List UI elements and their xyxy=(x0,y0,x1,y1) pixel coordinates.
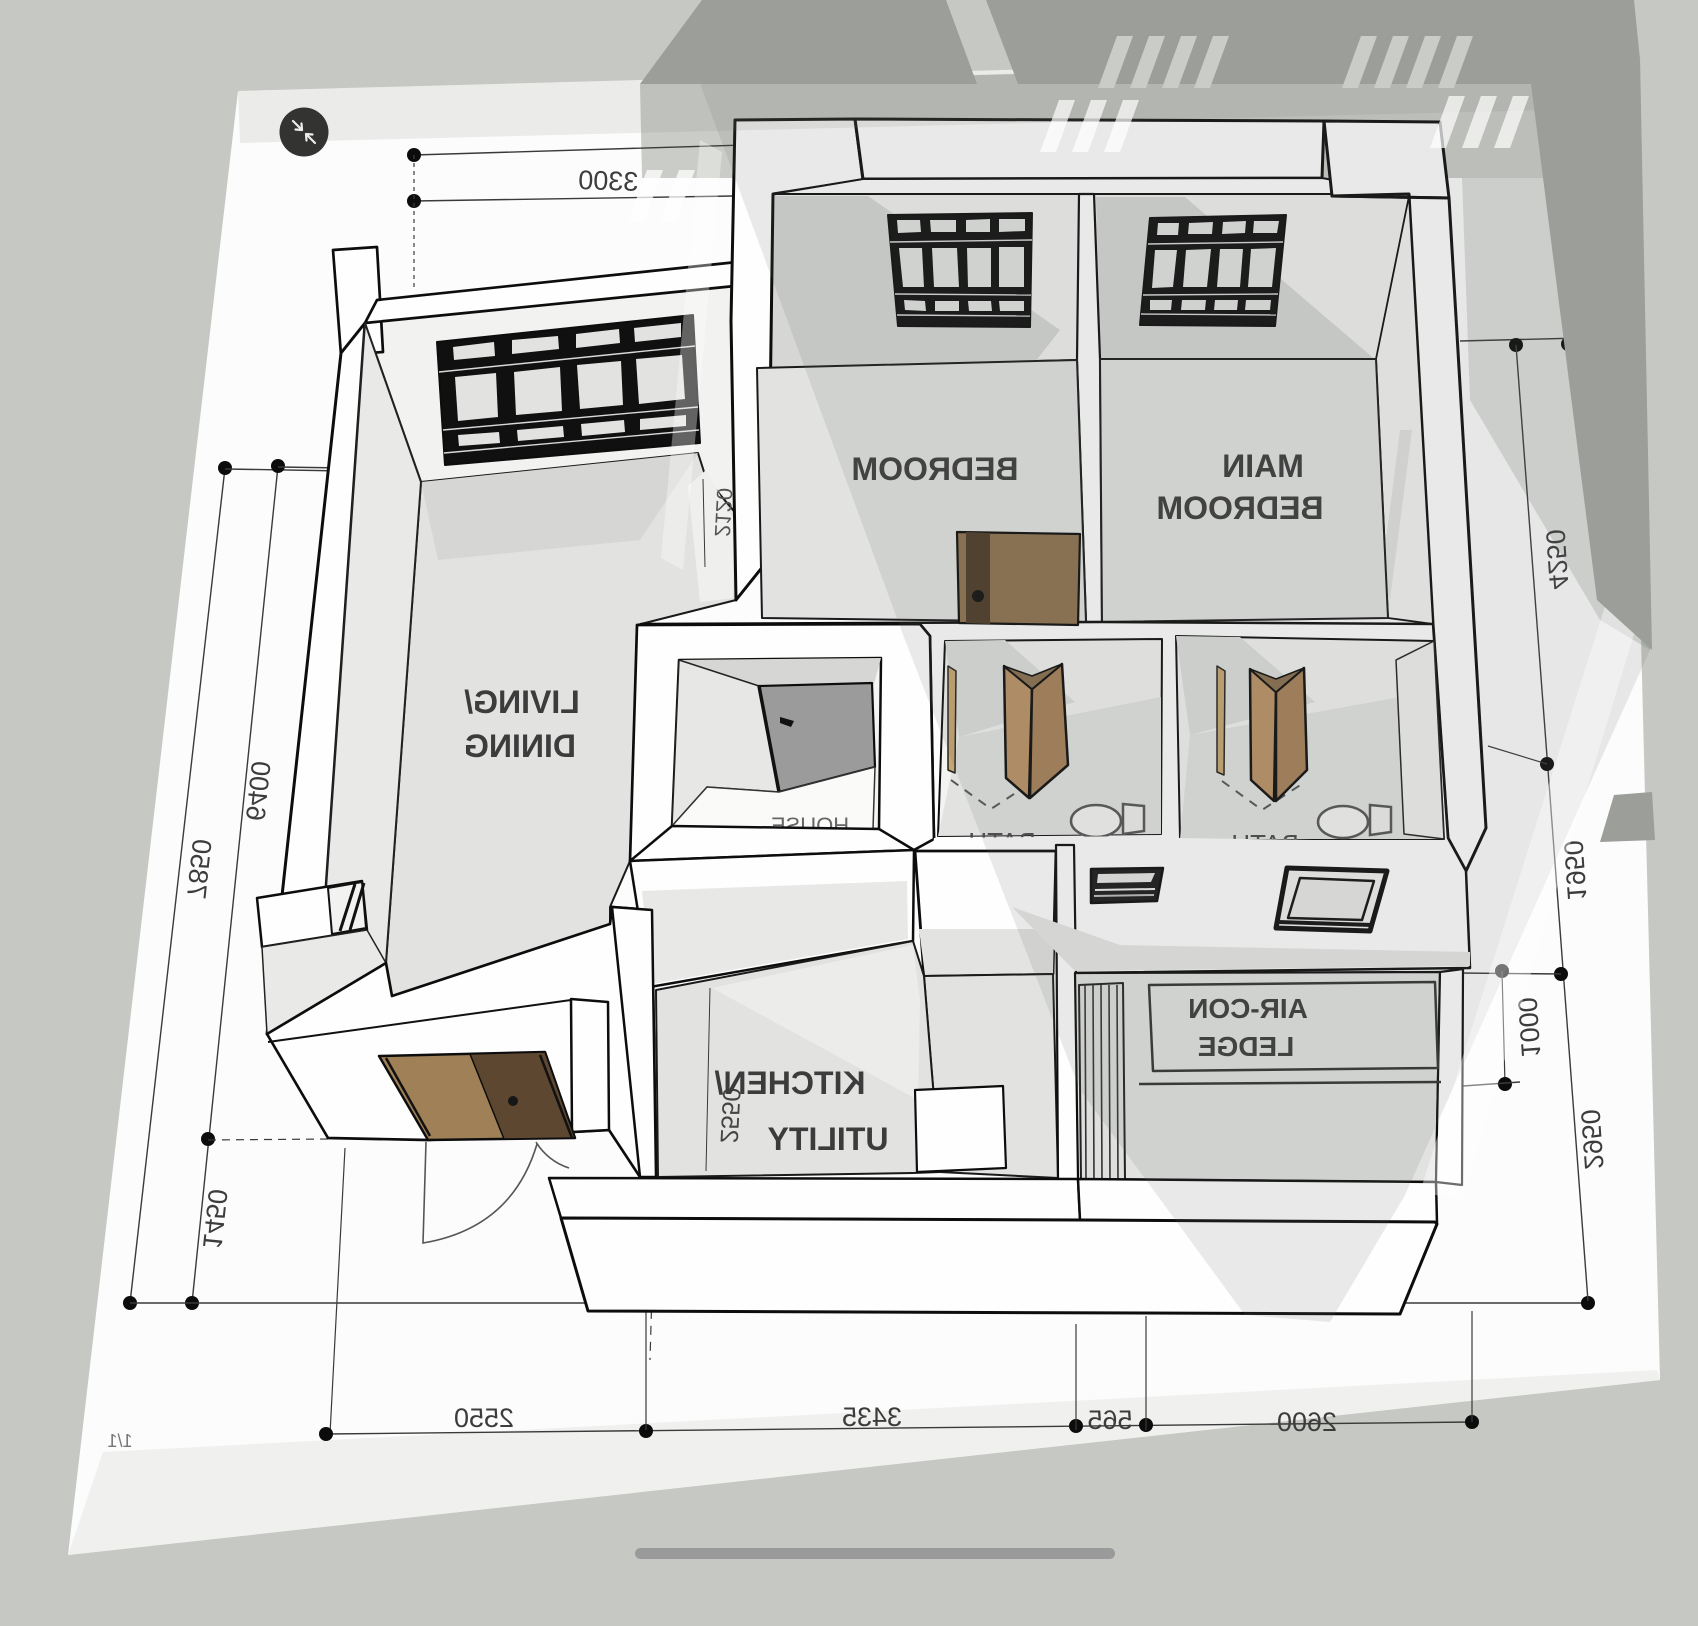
svg-text:KITCHEN/: KITCHEN/ xyxy=(714,1065,865,1101)
svg-text:6400: 6400 xyxy=(240,759,276,822)
svg-text:2600: 2600 xyxy=(1277,1407,1337,1437)
svg-text:DINING: DINING xyxy=(464,728,576,764)
svg-text:565: 565 xyxy=(1087,1405,1132,1435)
svg-text:1450: 1450 xyxy=(197,1187,233,1250)
svg-text:3300: 3300 xyxy=(578,165,639,197)
svg-text:2550: 2550 xyxy=(454,1403,514,1433)
svg-text:1/1: 1/1 xyxy=(107,1431,132,1451)
svg-text:2120: 2120 xyxy=(710,487,738,537)
svg-text:7850: 7850 xyxy=(181,837,217,900)
svg-text:UTILITY: UTILITY xyxy=(768,1121,889,1157)
svg-text:3435: 3435 xyxy=(842,1402,902,1432)
svg-text:LIVING/: LIVING/ xyxy=(464,684,580,720)
svg-text:2950: 2950 xyxy=(1575,1108,1609,1170)
